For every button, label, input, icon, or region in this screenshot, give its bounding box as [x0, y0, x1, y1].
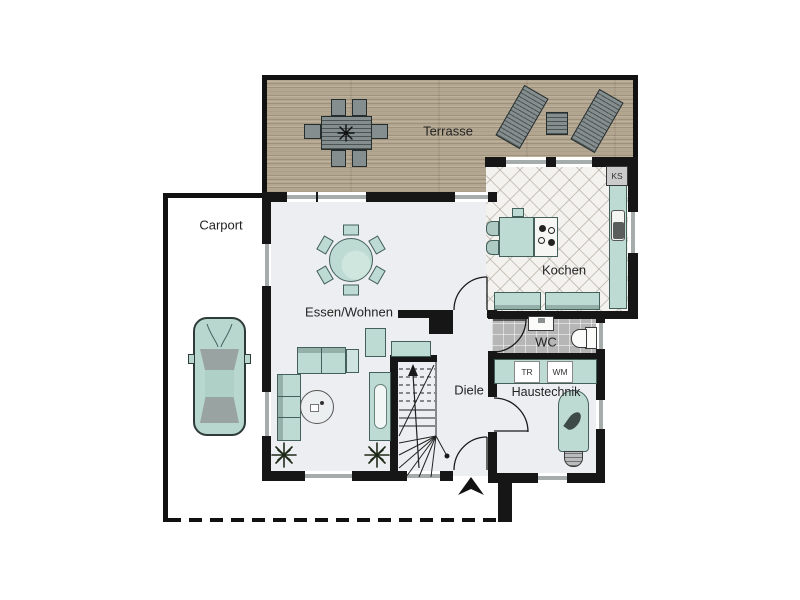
coffee-table-dot [320, 401, 324, 405]
window-west-1 [262, 244, 271, 286]
wall [488, 311, 497, 319]
terrace-border-top [262, 75, 638, 80]
room-label-kitchen: Kochen [542, 263, 586, 278]
wall [628, 157, 638, 212]
window-south-1 [305, 471, 352, 481]
car-mirror [244, 354, 251, 364]
wall [262, 192, 271, 244]
room-label-terrace: Terrasse [423, 124, 473, 139]
terrace-border-right [633, 80, 638, 157]
wall [546, 157, 556, 167]
island-chair [486, 221, 499, 236]
terrace-door-living [318, 192, 366, 202]
wall [485, 157, 506, 167]
island-chair [486, 240, 499, 255]
floor-plan: Carport Terrasse Essen/Wohnen Kochen WC … [0, 0, 800, 600]
wall [488, 192, 497, 202]
chimney-block [429, 318, 453, 334]
terrace-chair [331, 99, 346, 116]
terrace-chair [304, 124, 321, 139]
wall [440, 471, 453, 481]
stair-sideboard [391, 341, 431, 357]
wall [596, 429, 605, 483]
window-north-2 [455, 192, 488, 202]
entrance-arrow-icon [458, 477, 484, 495]
window-west-2 [262, 392, 271, 436]
window-kitchen-east [628, 212, 638, 253]
terrace-side-table [546, 112, 568, 135]
kitchen-bench [494, 292, 541, 310]
room-label-carport: Carport [199, 218, 242, 233]
car-windshield [200, 349, 239, 372]
room-label-living: Essen/Wohnen [305, 305, 393, 320]
room-label-hallway: Diele [454, 383, 484, 398]
kitchen-island-tap [512, 208, 524, 217]
burner [538, 237, 545, 244]
window-kitchen-north [556, 157, 592, 167]
terrace-door-kitchen [506, 157, 546, 167]
carport-dashed-boundary [168, 518, 498, 522]
stair-wall-left [390, 355, 398, 481]
wall [628, 253, 638, 319]
wall [262, 286, 271, 392]
room-label-utility: Haustechnik [512, 385, 581, 399]
wall [366, 192, 455, 202]
car-roof [205, 370, 234, 398]
terrace-table [321, 116, 372, 150]
dining-chair [343, 225, 359, 236]
wall [488, 311, 638, 319]
car-mirror [188, 354, 195, 364]
terrace-chair [352, 99, 367, 116]
carport-post-wall [498, 481, 512, 522]
cooktop-counter [534, 217, 558, 257]
sofa-horizontal [297, 347, 346, 374]
fridge-label: KS [611, 171, 622, 181]
burner [539, 225, 546, 232]
dining-chair [343, 285, 359, 296]
washer-label: WM [552, 367, 567, 377]
room-label-wc: WC [535, 335, 557, 350]
window-utility-south [538, 473, 567, 483]
utility-counter [494, 359, 597, 384]
wall [596, 311, 605, 323]
terrace-chair [371, 124, 388, 139]
kitchen-island [499, 217, 534, 257]
car-rear-window [200, 397, 239, 423]
kitchen-counter-east [609, 184, 627, 309]
window-south-2 [407, 471, 440, 481]
burner [548, 227, 555, 234]
sofa-side-table [346, 349, 359, 373]
carport-line-left [163, 193, 168, 522]
window-north-1 [287, 192, 316, 202]
kitchen-sink-basin [613, 222, 624, 239]
kitchen-bench [545, 292, 600, 310]
window-wc-east [596, 323, 605, 349]
tv-sideboard-detail [374, 384, 387, 429]
terrace-border-left [262, 80, 267, 192]
coffee-table-tray [310, 404, 319, 412]
sofa-vertical [277, 374, 301, 441]
shelf [365, 328, 386, 357]
dining-table [329, 238, 373, 282]
wall [262, 471, 305, 481]
terrace-chair [352, 150, 367, 167]
wall [488, 432, 497, 481]
toilet-bowl [571, 329, 587, 348]
wall [398, 310, 453, 318]
terrace-chair [331, 150, 346, 167]
wall [596, 349, 605, 400]
wall [352, 471, 407, 481]
window-utility-east [596, 400, 605, 429]
carport-line-top [163, 193, 262, 198]
wc-sink-tap [538, 318, 545, 323]
burner [548, 239, 555, 246]
dryer-label: TR [521, 367, 532, 377]
